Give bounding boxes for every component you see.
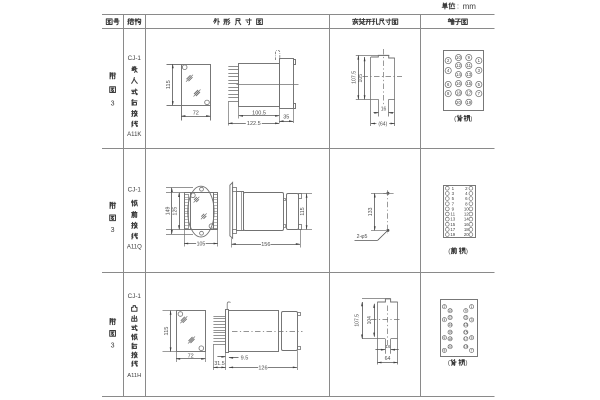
svg-text:A11K: A11K: [127, 132, 141, 138]
svg-text:8: 8: [443, 349, 445, 353]
svg-text:1: 1: [471, 305, 473, 309]
svg-text:35: 35: [283, 115, 289, 121]
svg-text:2: 2: [447, 58, 450, 63]
svg-text:2: 2: [443, 305, 445, 309]
svg-text:4: 4: [443, 318, 445, 322]
svg-text:13: 13: [464, 323, 468, 327]
svg-text:72: 72: [188, 353, 194, 359]
svg-text:18: 18: [456, 90, 461, 95]
svg-text:CJ-1: CJ-1: [128, 187, 142, 194]
svg-text:100.5: 100.5: [252, 110, 266, 116]
svg-text:13: 13: [466, 72, 471, 77]
svg-text:3: 3: [111, 100, 115, 107]
svg-text:12: 12: [456, 63, 461, 68]
svg-text:A11Q: A11Q: [127, 244, 142, 250]
svg-text:5: 5: [478, 82, 481, 87]
svg-text:6: 6: [447, 82, 450, 87]
svg-text:8: 8: [447, 91, 450, 96]
svg-text:9: 9: [465, 309, 467, 313]
svg-text:10: 10: [448, 309, 452, 313]
svg-text:1: 1: [478, 58, 481, 63]
svg-text:104: 104: [367, 316, 373, 325]
svg-text:115: 115: [164, 327, 170, 336]
svg-text:115: 115: [166, 80, 172, 89]
svg-text:20: 20: [448, 345, 452, 349]
svg-text:4: 4: [447, 68, 450, 73]
svg-text:107.5: 107.5: [352, 71, 358, 84]
svg-text:122.5: 122.5: [247, 121, 261, 127]
svg-text:125: 125: [172, 207, 178, 216]
svg-text:20: 20: [464, 232, 469, 237]
svg-text:107.5: 107.5: [355, 314, 361, 327]
svg-text:149: 149: [165, 207, 171, 216]
svg-text:16: 16: [456, 81, 461, 86]
svg-text:7: 7: [478, 91, 481, 96]
svg-text::: :: [457, 4, 459, 11]
svg-text:17: 17: [464, 337, 468, 341]
svg-text:12: 12: [448, 316, 452, 320]
svg-text:19: 19: [450, 232, 455, 237]
svg-text:7: 7: [471, 349, 473, 353]
svg-text:9: 9: [468, 55, 471, 60]
svg-text:): ): [470, 115, 472, 122]
svg-text:72: 72: [193, 110, 199, 116]
svg-text:14: 14: [448, 323, 452, 327]
svg-text:18: 18: [448, 337, 452, 341]
svg-text:20: 20: [456, 100, 461, 105]
svg-text:3: 3: [471, 318, 473, 322]
svg-text:6: 6: [443, 336, 445, 340]
svg-text:3: 3: [111, 227, 115, 234]
svg-text:105: 105: [197, 241, 206, 247]
svg-text:11: 11: [467, 63, 472, 68]
svg-text:(: (: [448, 248, 451, 255]
svg-text:2-φ5: 2-φ5: [357, 234, 368, 240]
svg-text:64: 64: [385, 356, 391, 362]
svg-text:133: 133: [368, 207, 374, 216]
svg-text:19: 19: [466, 100, 471, 105]
svg-text:): ): [465, 360, 467, 367]
svg-text:CJ-1: CJ-1: [128, 293, 142, 300]
svg-text:14: 14: [456, 72, 461, 77]
svg-text:16: 16: [448, 330, 452, 334]
svg-text:3: 3: [111, 342, 115, 349]
svg-text:mm: mm: [463, 2, 477, 11]
svg-text:10: 10: [456, 55, 461, 60]
svg-text:156: 156: [261, 242, 270, 248]
svg-text:115: 115: [300, 207, 306, 215]
svg-text:A11H: A11H: [127, 373, 141, 379]
svg-text:3: 3: [478, 68, 481, 73]
svg-text:31.5: 31.5: [214, 361, 224, 367]
svg-text:11: 11: [464, 316, 468, 320]
svg-text:5: 5: [471, 336, 473, 340]
svg-text:15: 15: [466, 81, 471, 86]
svg-text:(64): (64): [378, 121, 387, 127]
svg-text:CJ-1: CJ-1: [128, 55, 142, 62]
svg-text:17: 17: [466, 90, 471, 95]
svg-text:): ): [466, 248, 468, 255]
svg-text:16: 16: [386, 344, 391, 349]
svg-text:19: 19: [464, 345, 468, 349]
svg-text:9.5: 9.5: [241, 356, 249, 362]
svg-text:126: 126: [258, 365, 267, 371]
svg-text:15: 15: [464, 330, 468, 334]
svg-text:16: 16: [381, 107, 387, 113]
svg-text:105: 105: [358, 74, 364, 83]
